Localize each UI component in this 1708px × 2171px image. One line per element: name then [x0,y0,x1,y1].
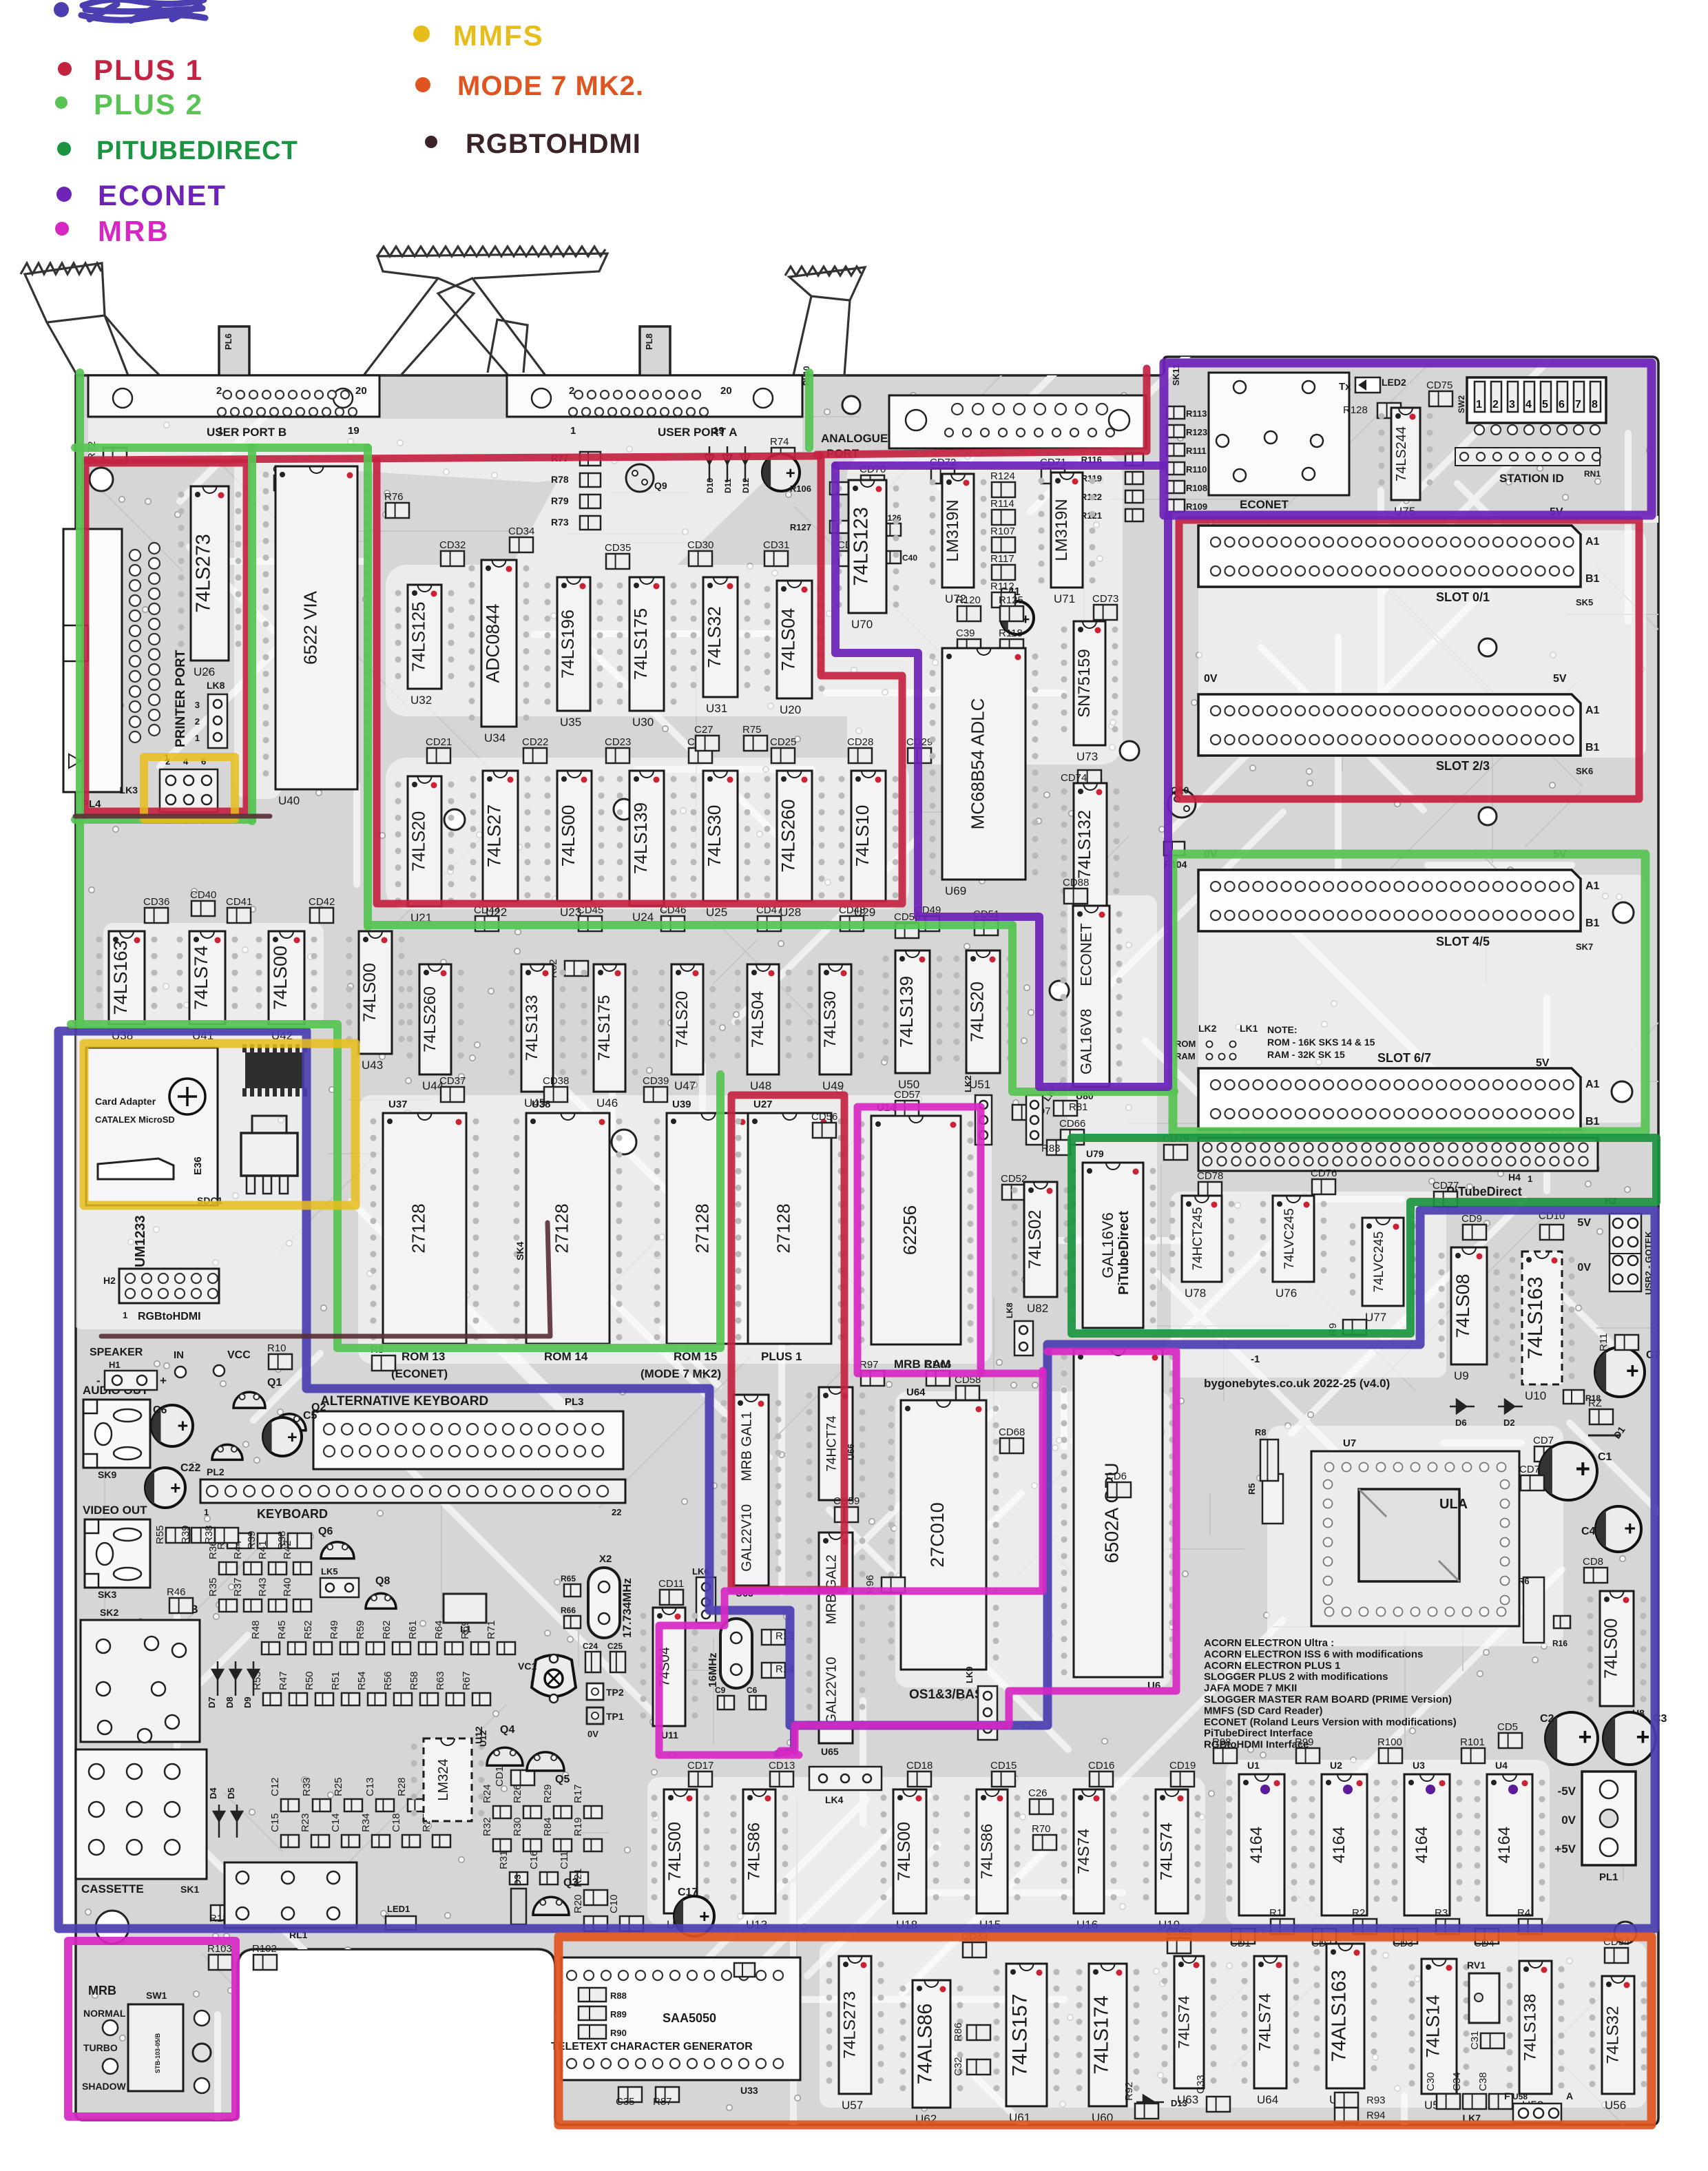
svg-text:R76: R76 [384,491,404,503]
svg-text:R117: R117 [990,553,1014,565]
svg-text:16MHz: 16MHz [707,1652,719,1687]
svg-text:R49: R49 [329,1620,340,1639]
svg-text:C39: C39 [956,627,975,639]
svg-text:74LS133: 74LS133 [523,995,541,1061]
svg-text:U43: U43 [362,1059,383,1072]
svg-text:74LS139: 74LS139 [630,802,651,874]
svg-text:R125: R125 [999,594,1023,606]
svg-text:C12: C12 [269,1777,281,1796]
svg-text:CD11: CD11 [658,1578,684,1590]
svg-text:R30: R30 [512,1817,523,1836]
svg-text:74LS00: 74LS00 [558,805,579,867]
svg-text:R26: R26 [512,1784,523,1803]
svg-text:+: + [160,1374,167,1387]
svg-text:CD21: CD21 [426,736,452,748]
svg-text:LED2: LED2 [1382,377,1406,388]
svg-text:C5: C5 [303,1410,317,1422]
svg-text:R59: R59 [355,1620,366,1639]
svg-text:U12: U12 [478,1730,488,1747]
svg-text:R94: R94 [1366,2110,1386,2121]
svg-text:ADC0844: ADC0844 [483,604,503,683]
svg-text:ROM: ROM [1175,1039,1196,1049]
svg-text:LK3: LK3 [120,785,138,796]
svg-text:CD74: CD74 [1061,772,1087,784]
svg-text:VIDEO OUT: VIDEO OUT [83,1504,147,1517]
svg-text:SLOT 0/1: SLOT 0/1 [1436,590,1490,604]
svg-text:PL2: PL2 [207,1466,225,1477]
svg-text:R101: R101 [1460,1736,1485,1748]
svg-text:74LS139: 74LS139 [896,976,917,1048]
svg-text:H4: H4 [1508,1172,1521,1183]
svg-text:6: 6 [1559,399,1565,411]
svg-text:R124: R124 [990,470,1015,482]
svg-text:+: + [1579,1724,1592,1750]
svg-text:LM324: LM324 [436,1758,451,1800]
svg-text:74LS30: 74LS30 [704,805,725,867]
svg-text:74ALS163: 74ALS163 [1329,1970,1351,2062]
svg-text:CD34: CD34 [508,526,534,537]
svg-text:R98: R98 [1212,1736,1231,1748]
svg-text:MMFS (SD Card Reader): MMFS (SD Card Reader) [1204,1705,1323,1716]
svg-text:ROM - 16K SKS 14 & 15: ROM - 16K SKS 14 & 15 [1267,1037,1375,1048]
svg-text:CD25: CD25 [770,736,796,748]
svg-text:CD73: CD73 [1092,593,1118,605]
svg-text:R67: R67 [461,1671,472,1690]
svg-text:62256: 62256 [899,1205,920,1255]
svg-text:LK1: LK1 [1240,1023,1258,1034]
svg-text:CD7: CD7 [1533,1435,1554,1446]
svg-text:74LS00: 74LS00 [895,1822,914,1881]
svg-text:R20: R20 [572,1894,584,1913]
svg-text:74LS157: 74LS157 [1009,1993,1032,2076]
svg-text:74LS125: 74LS125 [410,602,429,672]
svg-text:PiTubeDirect: PiTubeDirect [1116,1211,1132,1295]
svg-text:R58: R58 [408,1671,420,1690]
svg-text:74LS174: 74LS174 [1091,1995,1113,2075]
svg-text:R111: R111 [1186,446,1207,456]
svg-text:R83: R83 [1041,1143,1061,1154]
svg-text:D11: D11 [723,478,733,493]
svg-text:U47: U47 [674,1079,696,1092]
svg-text:CD75: CD75 [1426,380,1452,391]
svg-text:UM1233: UM1233 [133,1215,148,1267]
svg-text:74LS273: 74LS273 [193,534,215,613]
svg-text:NOTE:: NOTE: [1267,1024,1298,1035]
svg-text:R84: R84 [542,1817,554,1836]
svg-text:R109: R109 [1186,501,1207,512]
svg-text:R74: R74 [770,436,789,448]
svg-text:R4: R4 [1517,1907,1530,1919]
svg-text:USER PORT A: USER PORT A [658,426,738,439]
svg-text:D5: D5 [226,1787,236,1799]
svg-text:R29: R29 [542,1784,554,1803]
svg-text:CASSETTE: CASSETTE [81,1882,144,1895]
svg-text:C14: C14 [330,1813,342,1832]
svg-text:D3: D3 [512,1874,523,1886]
svg-text:R37: R37 [232,1577,244,1597]
svg-text:19: 19 [348,425,360,437]
svg-text:R79: R79 [551,495,569,506]
svg-text:LK8: LK8 [1005,1302,1014,1318]
svg-text:C17: C17 [678,1887,698,1898]
svg-text:U20: U20 [780,703,801,716]
svg-text:74LS163: 74LS163 [1524,1276,1547,1359]
svg-text:1: 1 [1476,399,1482,411]
svg-text:U3: U3 [1413,1760,1425,1771]
svg-text:B1: B1 [1585,1116,1600,1128]
svg-text:27128: 27128 [773,1203,794,1253]
svg-text:74LS30: 74LS30 [821,991,840,1048]
svg-text:R31: R31 [498,1850,510,1869]
svg-text:C18: C18 [390,1813,402,1832]
svg-text:SK5: SK5 [1576,597,1593,607]
svg-text:C38: C38 [1477,2072,1489,2091]
svg-text:U58: U58 [1512,2092,1528,2101]
svg-text:D8: D8 [225,1696,235,1708]
svg-text:D6: D6 [1455,1417,1467,1428]
svg-text:MRB: MRB [88,1984,116,1997]
svg-text:R45: R45 [276,1620,288,1639]
svg-text:74LS123: 74LS123 [851,507,873,586]
svg-text:C34: C34 [1451,2072,1463,2091]
svg-text:74S74: 74S74 [1074,1829,1092,1874]
svg-text:H1: H1 [109,1360,121,1370]
svg-text:R118: R118 [999,627,1023,639]
svg-text:U77: U77 [1365,1311,1386,1324]
svg-text:-5V: -5V [1558,1785,1576,1798]
svg-text:1: 1 [195,733,200,743]
svg-text:R106: R106 [790,484,811,494]
svg-text:74LS196: 74LS196 [559,610,578,678]
svg-text:U31: U31 [706,702,727,715]
svg-text:U33: U33 [740,2085,758,2096]
svg-text:C31: C31 [1469,2030,1481,2050]
svg-text:GAL16V8: GAL16V8 [1078,1009,1095,1074]
svg-text:2: 2 [216,385,222,397]
svg-text:R48: R48 [250,1620,262,1639]
svg-text:R1: R1 [1269,1907,1282,1919]
svg-text:74LVC245: 74LVC245 [1372,1232,1386,1292]
svg-text:+: + [170,1477,180,1498]
svg-text:U49: U49 [822,1079,844,1092]
svg-text:CD38: CD38 [543,1075,569,1087]
svg-text:H2: H2 [103,1275,116,1286]
svg-text:+: + [1626,1358,1639,1383]
svg-text:A1: A1 [1585,1079,1600,1090]
svg-text:74LS00: 74LS00 [270,946,291,1010]
svg-text:5: 5 [1542,399,1548,411]
svg-text:C15: C15 [269,1813,281,1832]
svg-text:R19: R19 [572,1817,584,1836]
svg-text:R127: R127 [790,522,811,532]
svg-text:U34: U34 [484,731,506,745]
svg-text:R66: R66 [561,1606,576,1615]
svg-text:GAL22V10: GAL22V10 [740,1504,755,1572]
svg-text:U25: U25 [706,906,727,919]
svg-text:STB-103-05/B: STB-103-05/B [154,2033,161,2073]
svg-text:CD32: CD32 [439,539,466,551]
svg-text:CD6: CD6 [1106,1471,1127,1482]
svg-text:MC68B54 ADLC: MC68B54 ADLC [968,698,988,830]
svg-text:IN: IN [174,1349,184,1361]
svg-text:U64: U64 [1257,2093,1278,2106]
svg-text:D9: D9 [242,1696,253,1708]
svg-text:U27: U27 [753,1099,773,1110]
svg-text:SK2: SK2 [100,1607,118,1618]
svg-text:U11: U11 [661,1729,678,1741]
svg-text:CD28: CD28 [847,736,873,748]
svg-text:-1: -1 [1251,1353,1260,1365]
svg-text:4164: 4164 [1495,1827,1514,1863]
svg-text:CD41: CD41 [226,896,252,908]
svg-text:R63: R63 [435,1671,446,1690]
svg-text:CD37: CD37 [439,1075,466,1087]
svg-text:R33: R33 [301,1777,313,1796]
svg-text:R62: R62 [381,1620,393,1639]
svg-text:74LS74: 74LS74 [191,946,211,1010]
svg-text:PLUS 2: PLUS 2 [94,88,203,121]
svg-text:4164: 4164 [1413,1827,1431,1863]
svg-text:R2: R2 [1352,1907,1365,1919]
svg-text:C22: C22 [180,1462,200,1474]
svg-text:U73: U73 [1076,750,1098,763]
svg-text:A: A [1566,2090,1573,2101]
svg-text:PL1: PL1 [1599,1871,1618,1883]
svg-text:-: - [96,1374,101,1387]
svg-text:CD57: CD57 [894,1089,920,1101]
svg-text:ACORN ELECTRON ISS 6 with: ACORN ELECTRON ISS 6 with modifications [1204,1648,1423,1660]
svg-text:CD56: CD56 [811,1111,837,1123]
svg-text:Q6: Q6 [318,1526,333,1537]
svg-text:CD76: CD76 [1311,1167,1337,1179]
svg-text:USER PORT B: USER PORT B [207,426,287,439]
svg-text:74LS00: 74LS00 [360,963,379,1022]
svg-text:CD23: CD23 [605,736,631,748]
svg-text:C27: C27 [694,724,714,736]
svg-text:R88: R88 [610,1991,627,2001]
svg-text:R128: R128 [1343,404,1368,416]
svg-text:C6: C6 [153,1404,167,1416]
svg-text:CD7: CD7 [1519,1464,1540,1475]
svg-text:PITUBEDIRECT: PITUBEDIRECT [96,136,298,165]
svg-text:R23: R23 [300,1813,311,1832]
svg-text:Q9: Q9 [654,480,667,491]
svg-text:Q1: Q1 [267,1377,282,1389]
svg-text:ACORN ELECTRON PLUS 1: ACORN ELECTRON PLUS 1 [1204,1660,1340,1672]
svg-text:SK7: SK7 [1576,942,1593,952]
svg-text:U9: U9 [1454,1369,1469,1382]
svg-text:1: 1 [1528,1174,1532,1184]
svg-text:C25: C25 [607,1641,623,1651]
svg-text:CD16: CD16 [1088,1760,1114,1772]
svg-text:R8: R8 [1255,1427,1267,1437]
svg-text:U48: U48 [750,1079,771,1092]
svg-text:74LS74: 74LS74 [1256,1993,1275,2051]
svg-text:R56: R56 [382,1671,394,1690]
svg-text:R54: R54 [356,1671,368,1690]
svg-text:CD66: CD66 [1059,1118,1085,1130]
svg-text:L1: L1 [460,1623,472,1634]
svg-text:R25: R25 [333,1777,344,1796]
svg-text:R93: R93 [1366,2095,1386,2106]
svg-text:+5V: +5V [1554,1842,1576,1856]
svg-text:74LS260: 74LS260 [778,799,799,872]
svg-text:C24: C24 [583,1641,598,1651]
svg-text:TP1: TP1 [606,1711,624,1722]
svg-text:B1: B1 [1585,742,1600,754]
svg-text:R50: R50 [304,1671,315,1690]
svg-text:1: 1 [123,1310,127,1320]
svg-text:R65: R65 [561,1574,576,1583]
svg-text:KEYBOARD: KEYBOARD [257,1507,328,1521]
svg-text:R5: R5 [1247,1483,1257,1495]
svg-text:U65: U65 [821,1746,839,1757]
svg-text:74HCT74: 74HCT74 [825,1415,840,1472]
svg-text:C2: C2 [1540,1713,1554,1725]
svg-text:0V: 0V [1561,1814,1576,1827]
svg-text:CD78: CD78 [1197,1170,1223,1182]
svg-text:Q5: Q5 [555,1774,570,1785]
svg-text:U1: U1 [1247,1760,1260,1771]
svg-text:74LS00: 74LS00 [1602,1619,1621,1679]
svg-text:74LS163: 74LS163 [110,940,131,1015]
svg-text:R110: R110 [1186,464,1207,475]
svg-text:5V: 5V [1553,673,1567,685]
svg-text:R78: R78 [551,474,569,485]
svg-text:74LS20: 74LS20 [968,981,988,1042]
svg-text:MRB: MRB [98,215,170,247]
svg-text:20: 20 [720,385,732,397]
svg-text:SK1: SK1 [180,1884,199,1895]
svg-text:STATION ID: STATION ID [1499,472,1564,485]
svg-text:RGBtoHDMI: RGBtoHDMI [138,1311,201,1322]
svg-text:CD13: CD13 [769,1760,795,1772]
svg-text:Card Adapter: Card Adapter [95,1096,156,1107]
svg-text:R100: R100 [1377,1736,1402,1748]
svg-text:0V: 0V [587,1729,598,1739]
svg-text:4164: 4164 [1330,1827,1348,1863]
svg-text:CD15: CD15 [990,1760,1017,1772]
svg-text:TP2: TP2 [606,1687,624,1698]
svg-text:R75: R75 [742,724,762,736]
svg-text:SLOGGER MASTER RAM BOARD (: SLOGGER MASTER RAM BOARD (PRIME Version) [1204,1694,1452,1705]
svg-text:A1: A1 [1585,536,1600,548]
svg-text:74LS244: 74LS244 [1394,426,1409,481]
svg-text:R108: R108 [1186,483,1207,493]
svg-text:C13: C13 [364,1777,376,1796]
svg-text:74HCT245: 74HCT245 [1191,1207,1205,1271]
svg-text:U28: U28 [780,906,801,919]
svg-text:74LS175: 74LS175 [630,608,651,680]
svg-text:LK8: LK8 [207,680,225,691]
svg-text:CD22: CD22 [522,736,548,748]
svg-text:R97: R97 [860,1359,879,1371]
svg-text:CD66: CD66 [925,1359,951,1371]
svg-text:ECONET: ECONET [1078,923,1095,986]
svg-text:U71: U71 [1054,592,1075,605]
svg-text:SK4: SK4 [514,1242,525,1260]
svg-text:R52: R52 [302,1620,314,1639]
svg-text:LED1: LED1 [387,1904,410,1914]
svg-text:74LS32: 74LS32 [1604,2006,1623,2064]
svg-text:R35: R35 [207,1577,219,1597]
svg-text:74LS86: 74LS86 [745,1822,764,1880]
svg-text:CD40: CD40 [190,889,216,901]
svg-text:+: + [1624,1518,1636,1540]
svg-text:LK2: LK2 [1198,1023,1217,1034]
svg-text:CD42: CD42 [309,896,335,908]
svg-text:SLOT 6/7: SLOT 6/7 [1377,1051,1431,1065]
svg-text:R40: R40 [282,1577,293,1597]
svg-text:74LS27: 74LS27 [484,804,505,867]
svg-text:R123: R123 [1186,427,1207,437]
svg-text:Q4: Q4 [500,1724,514,1736]
svg-text:R112: R112 [990,581,1014,592]
svg-text:74LS138: 74LS138 [1521,1994,1540,2061]
svg-text:Tx: Tx [1339,381,1351,393]
svg-text:5V: 5V [1577,1217,1591,1229]
svg-text:(MODE 7 MK2): (MODE 7 MK2) [640,1367,721,1380]
svg-text:Q8: Q8 [375,1575,390,1587]
svg-text:CD88: CD88 [1063,877,1089,889]
svg-text:TELETEXT CHARACTER GENERATOR: TELETEXT CHARACTER GENERATOR [551,2041,753,2053]
svg-text:LK9: LK9 [964,1666,975,1683]
svg-text:CD31: CD31 [763,539,789,551]
svg-text:R41: R41 [257,1540,269,1559]
svg-text:74LS32: 74LS32 [704,606,725,668]
svg-text:R90: R90 [610,2028,627,2038]
svg-text:CATALEX MicroSD: CATALEX MicroSD [95,1114,175,1125]
svg-text:C1: C1 [1598,1451,1612,1463]
svg-text:F: F [1504,2090,1510,2101]
svg-text:74LS260: 74LS260 [421,986,439,1052]
svg-text:CD19: CD19 [1169,1760,1196,1772]
svg-text:A1: A1 [1585,880,1600,892]
svg-text:+: + [786,464,795,483]
svg-text:C6: C6 [747,1685,758,1695]
svg-text:74LS08: 74LS08 [1452,1274,1473,1338]
svg-text:R24: R24 [481,1784,493,1803]
svg-text:+: + [1636,1724,1650,1750]
svg-text:3: 3 [1509,399,1515,411]
svg-text:R61: R61 [407,1620,419,1639]
svg-text:20: 20 [355,385,367,397]
svg-text:27C010: 27C010 [927,1502,948,1568]
svg-text:U46: U46 [596,1097,618,1110]
svg-text:SW2: SW2 [1457,395,1466,413]
svg-text:CD5: CD5 [1497,1721,1518,1733]
svg-text:SK9: SK9 [98,1469,116,1480]
svg-text:U79: U79 [1086,1148,1104,1159]
svg-text:U72: U72 [945,592,966,605]
svg-text:ACORN ELECTRON Ultra :: ACORN ELECTRON Ultra : [1204,1637,1334,1649]
svg-text:SHADOW: SHADOW [82,2081,127,2092]
svg-text:C32: C32 [952,2057,964,2076]
svg-text:PLUS 1: PLUS 1 [761,1350,802,1363]
svg-text:PL6: PL6 [223,333,233,350]
svg-text:C4: C4 [1581,1526,1596,1537]
svg-text:C40: C40 [902,553,917,563]
svg-text:R38: R38 [203,1525,215,1544]
svg-text:PLUS 1: PLUS 1 [94,54,203,86]
svg-text:U26: U26 [194,665,215,678]
svg-text:R46: R46 [167,1586,186,1598]
svg-text:SPEAKER: SPEAKER [90,1347,143,1358]
svg-text:R17: R17 [572,1784,584,1803]
svg-text:U82: U82 [1027,1302,1048,1315]
svg-text:B1: B1 [1585,573,1600,585]
svg-text:RZ: RZ [1588,1398,1602,1409]
